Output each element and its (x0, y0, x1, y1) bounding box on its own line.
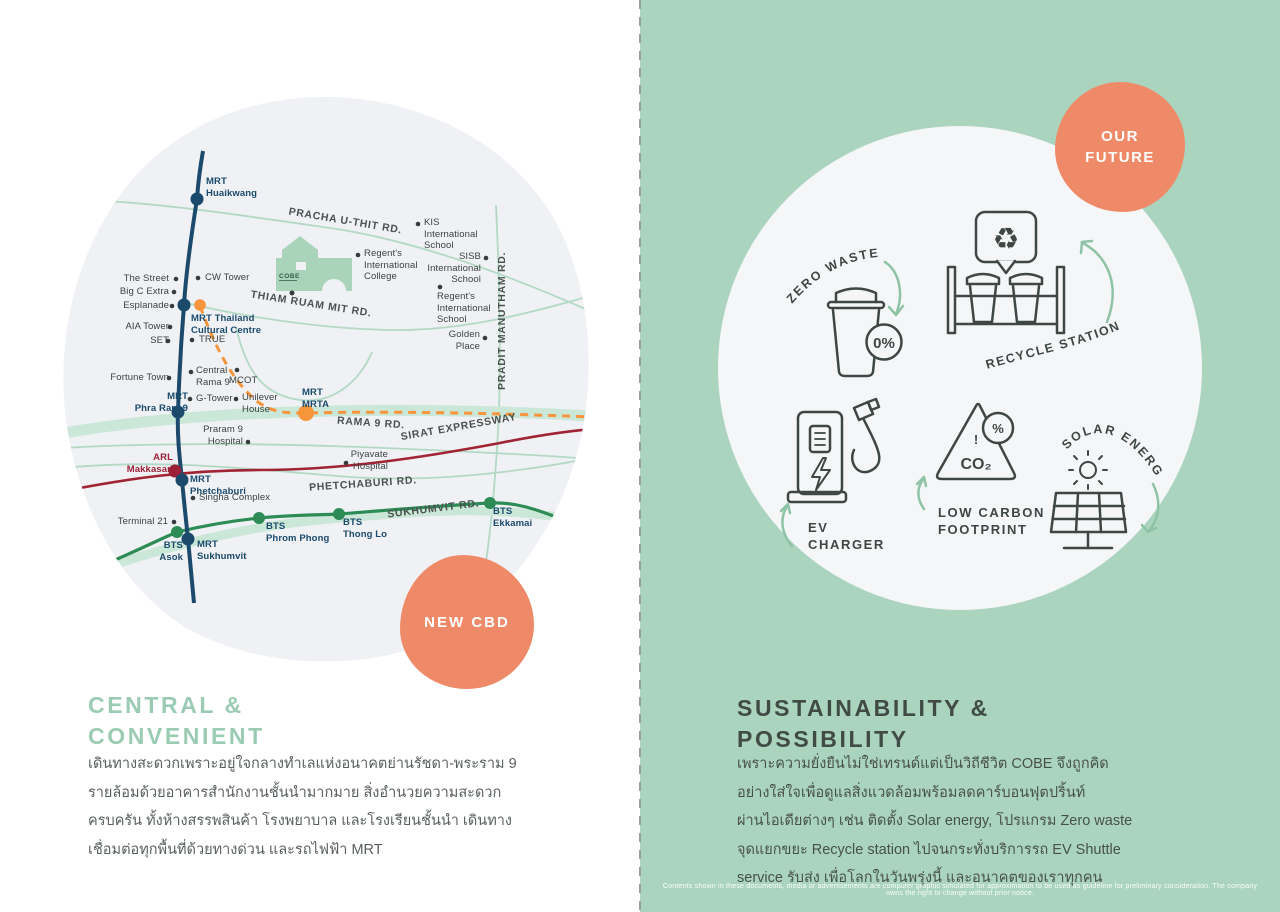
station-label-makkasan: ARL Makkasan (127, 452, 173, 475)
landmark-fortune-town: Fortune Town (110, 372, 169, 384)
station-label-thong-lo: BTS Thong Lo (343, 517, 387, 540)
right-panel-sustainability: 0% ♻ (640, 0, 1280, 912)
landmark-the-street: The Street (124, 273, 169, 285)
station-label-mrta: MRT MRTA (302, 387, 329, 410)
landmark-golden-place: Golden Place (449, 329, 480, 352)
station-label-phra-ram9: MRT Phra Ram 9 (135, 391, 188, 414)
right-body-text: เพราะความยั่งยืนไม่ใช่เทรนด์แต่เป็นวิถีช… (737, 750, 1217, 893)
landmark-set: SET (150, 335, 169, 347)
landmark-terminal21: Terminal 21 (118, 516, 168, 528)
landmark-kis: KIS International School (424, 217, 478, 252)
landmark-true: TRUE (199, 334, 225, 346)
landmark-regents-school: Regent's International School (437, 291, 491, 326)
landmark-big-c: Big C Extra (120, 286, 169, 298)
ev-charger-label: EV CHARGER (808, 519, 885, 553)
brochure-page: COBE (0, 0, 1280, 912)
co2-label: CO₂ (960, 456, 991, 473)
landmark-sisb: SISB International School (427, 251, 481, 286)
zero-percent-badge: 0% (873, 335, 895, 352)
station-label-phrom-phong: BTS Phrom Phong (266, 521, 329, 544)
low-carbon-label: LOW CARBON FOOTPRINT (938, 504, 1045, 538)
right-heading: SUSTAINABILITY & POSSIBILITY (737, 693, 990, 755)
road-label-pradit-manutham: PRADIT MANUTHAM RD. (496, 252, 508, 390)
landmark-central-rama9: Central Rama 9 (196, 365, 230, 388)
landmark-mcot: MCOT (229, 375, 257, 387)
station-label-cultural-centre: MRT Thailand Cultural Centre (191, 313, 261, 336)
percent-sign: % (992, 421, 1004, 436)
station-label-asok: BTS Asok (159, 540, 183, 563)
station-label-ekkamai: BTS Ekkamai (493, 506, 532, 529)
landmark-unilever: Unilever House (242, 392, 278, 415)
station-label-huaikwang: MRT Huaikwang (206, 176, 257, 199)
cobe-building-label: COBE (279, 273, 300, 280)
left-heading: CENTRAL & CONVENIENT (88, 690, 265, 752)
left-body-text: เดินทางสะดวกเพราะอยู่ใจกลางทำเลแห่งอนาคต… (88, 750, 548, 864)
our-future-badge: OUR FUTURE (1055, 82, 1185, 212)
landmark-cw-tower: CW Tower (205, 272, 249, 284)
landmark-singha: Singha Complex (199, 492, 270, 504)
legal-disclaimer: Contents shown in these documents, media… (660, 883, 1260, 897)
landmark-praram9-hospital: Praram 9 Hospital (203, 424, 243, 447)
recycle-icon: ♻ (993, 223, 1020, 256)
left-panel-central-convenient: COBE (0, 0, 640, 912)
station-label-sukhumvit: MRT Sukhumvit (197, 539, 246, 562)
landmark-regents-college: Regent's International College (364, 248, 418, 283)
landmark-aia-tower: AIA Tower (126, 321, 170, 333)
landmark-esplanade: Esplanade (123, 300, 169, 312)
warning-mark: ! (974, 432, 978, 447)
landmark-piyavate: Piyavate Hospital (351, 449, 388, 472)
landmark-g-tower: G-Tower (196, 393, 233, 405)
